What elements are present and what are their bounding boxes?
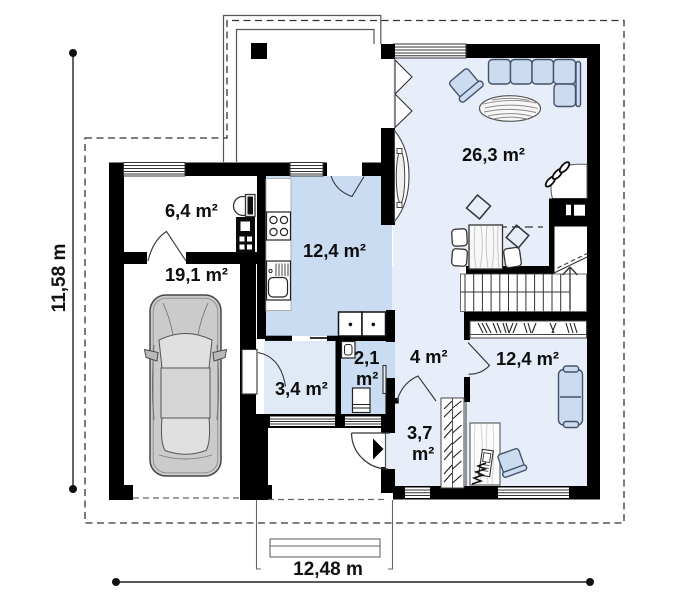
svg-text:3,4 m²: 3,4 m² [275,378,328,399]
svg-text:12,4 m²: 12,4 m² [496,348,559,369]
svg-text:11,58 m: 11,58 m [49,244,70,313]
svg-text:19,1 m²: 19,1 m² [165,264,228,285]
svg-text:4 m²: 4 m² [410,346,448,367]
svg-text:m²: m² [356,368,378,389]
svg-text:6,4 m²: 6,4 m² [165,200,218,221]
svg-text:12,4 m²: 12,4 m² [303,240,366,261]
svg-text:26,3 m²: 26,3 m² [462,144,525,165]
svg-text:3,7: 3,7 [407,422,432,443]
svg-text:m²: m² [412,443,434,464]
svg-text:12,48 m: 12,48 m [293,559,363,580]
svg-text:2,1: 2,1 [354,347,379,368]
